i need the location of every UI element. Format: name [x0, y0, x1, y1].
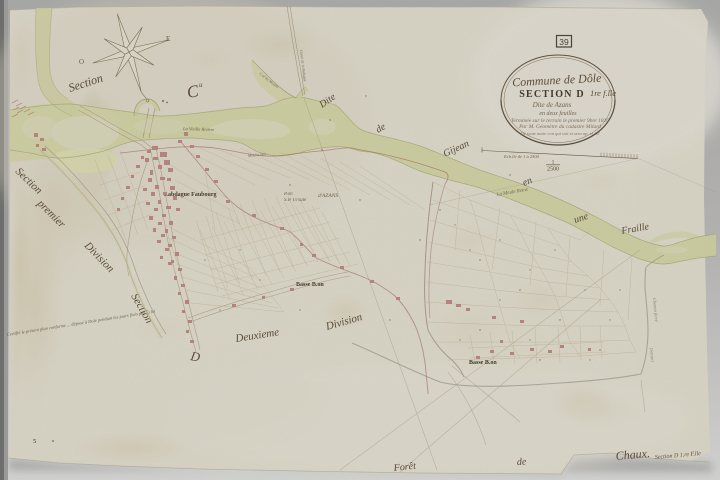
svg-text:E: E — [166, 35, 170, 43]
svg-text:Chaux.: Chaux. — [615, 446, 650, 463]
svg-text:Basse B.on: Basse B.on — [469, 360, 497, 366]
svg-text:De toute autre con qui soit et: De toute autre con qui soit et sera ap. … — [520, 131, 601, 136]
svg-text:de: de — [517, 456, 528, 468]
svg-text:u: u — [199, 81, 203, 89]
svg-text:Ech.lle de 1 à 2500: Ech.lle de 1 à 2500 — [503, 154, 540, 159]
svg-text:S.te Ursule: S.te Ursule — [284, 198, 307, 203]
svg-text:2500: 2500 — [547, 167, 559, 173]
svg-text:5: 5 — [33, 438, 36, 445]
svg-text:d'AZANS: d'AZANS — [318, 193, 338, 199]
svg-text:1re f.lle: 1re f.lle — [590, 88, 616, 98]
svg-text:O: O — [79, 58, 84, 66]
svg-text:39: 39 — [559, 37, 569, 47]
svg-text:en deux feuilles: en deux feuilles — [539, 110, 577, 117]
svg-text:SECTION D: SECTION D — [519, 89, 585, 100]
svg-text:Par M. Géomètre du cadastre Mi: Par M. Géomètre du cadastre Milard — [518, 124, 601, 130]
svg-text:Dite de Azans: Dite de Azans — [532, 101, 572, 109]
